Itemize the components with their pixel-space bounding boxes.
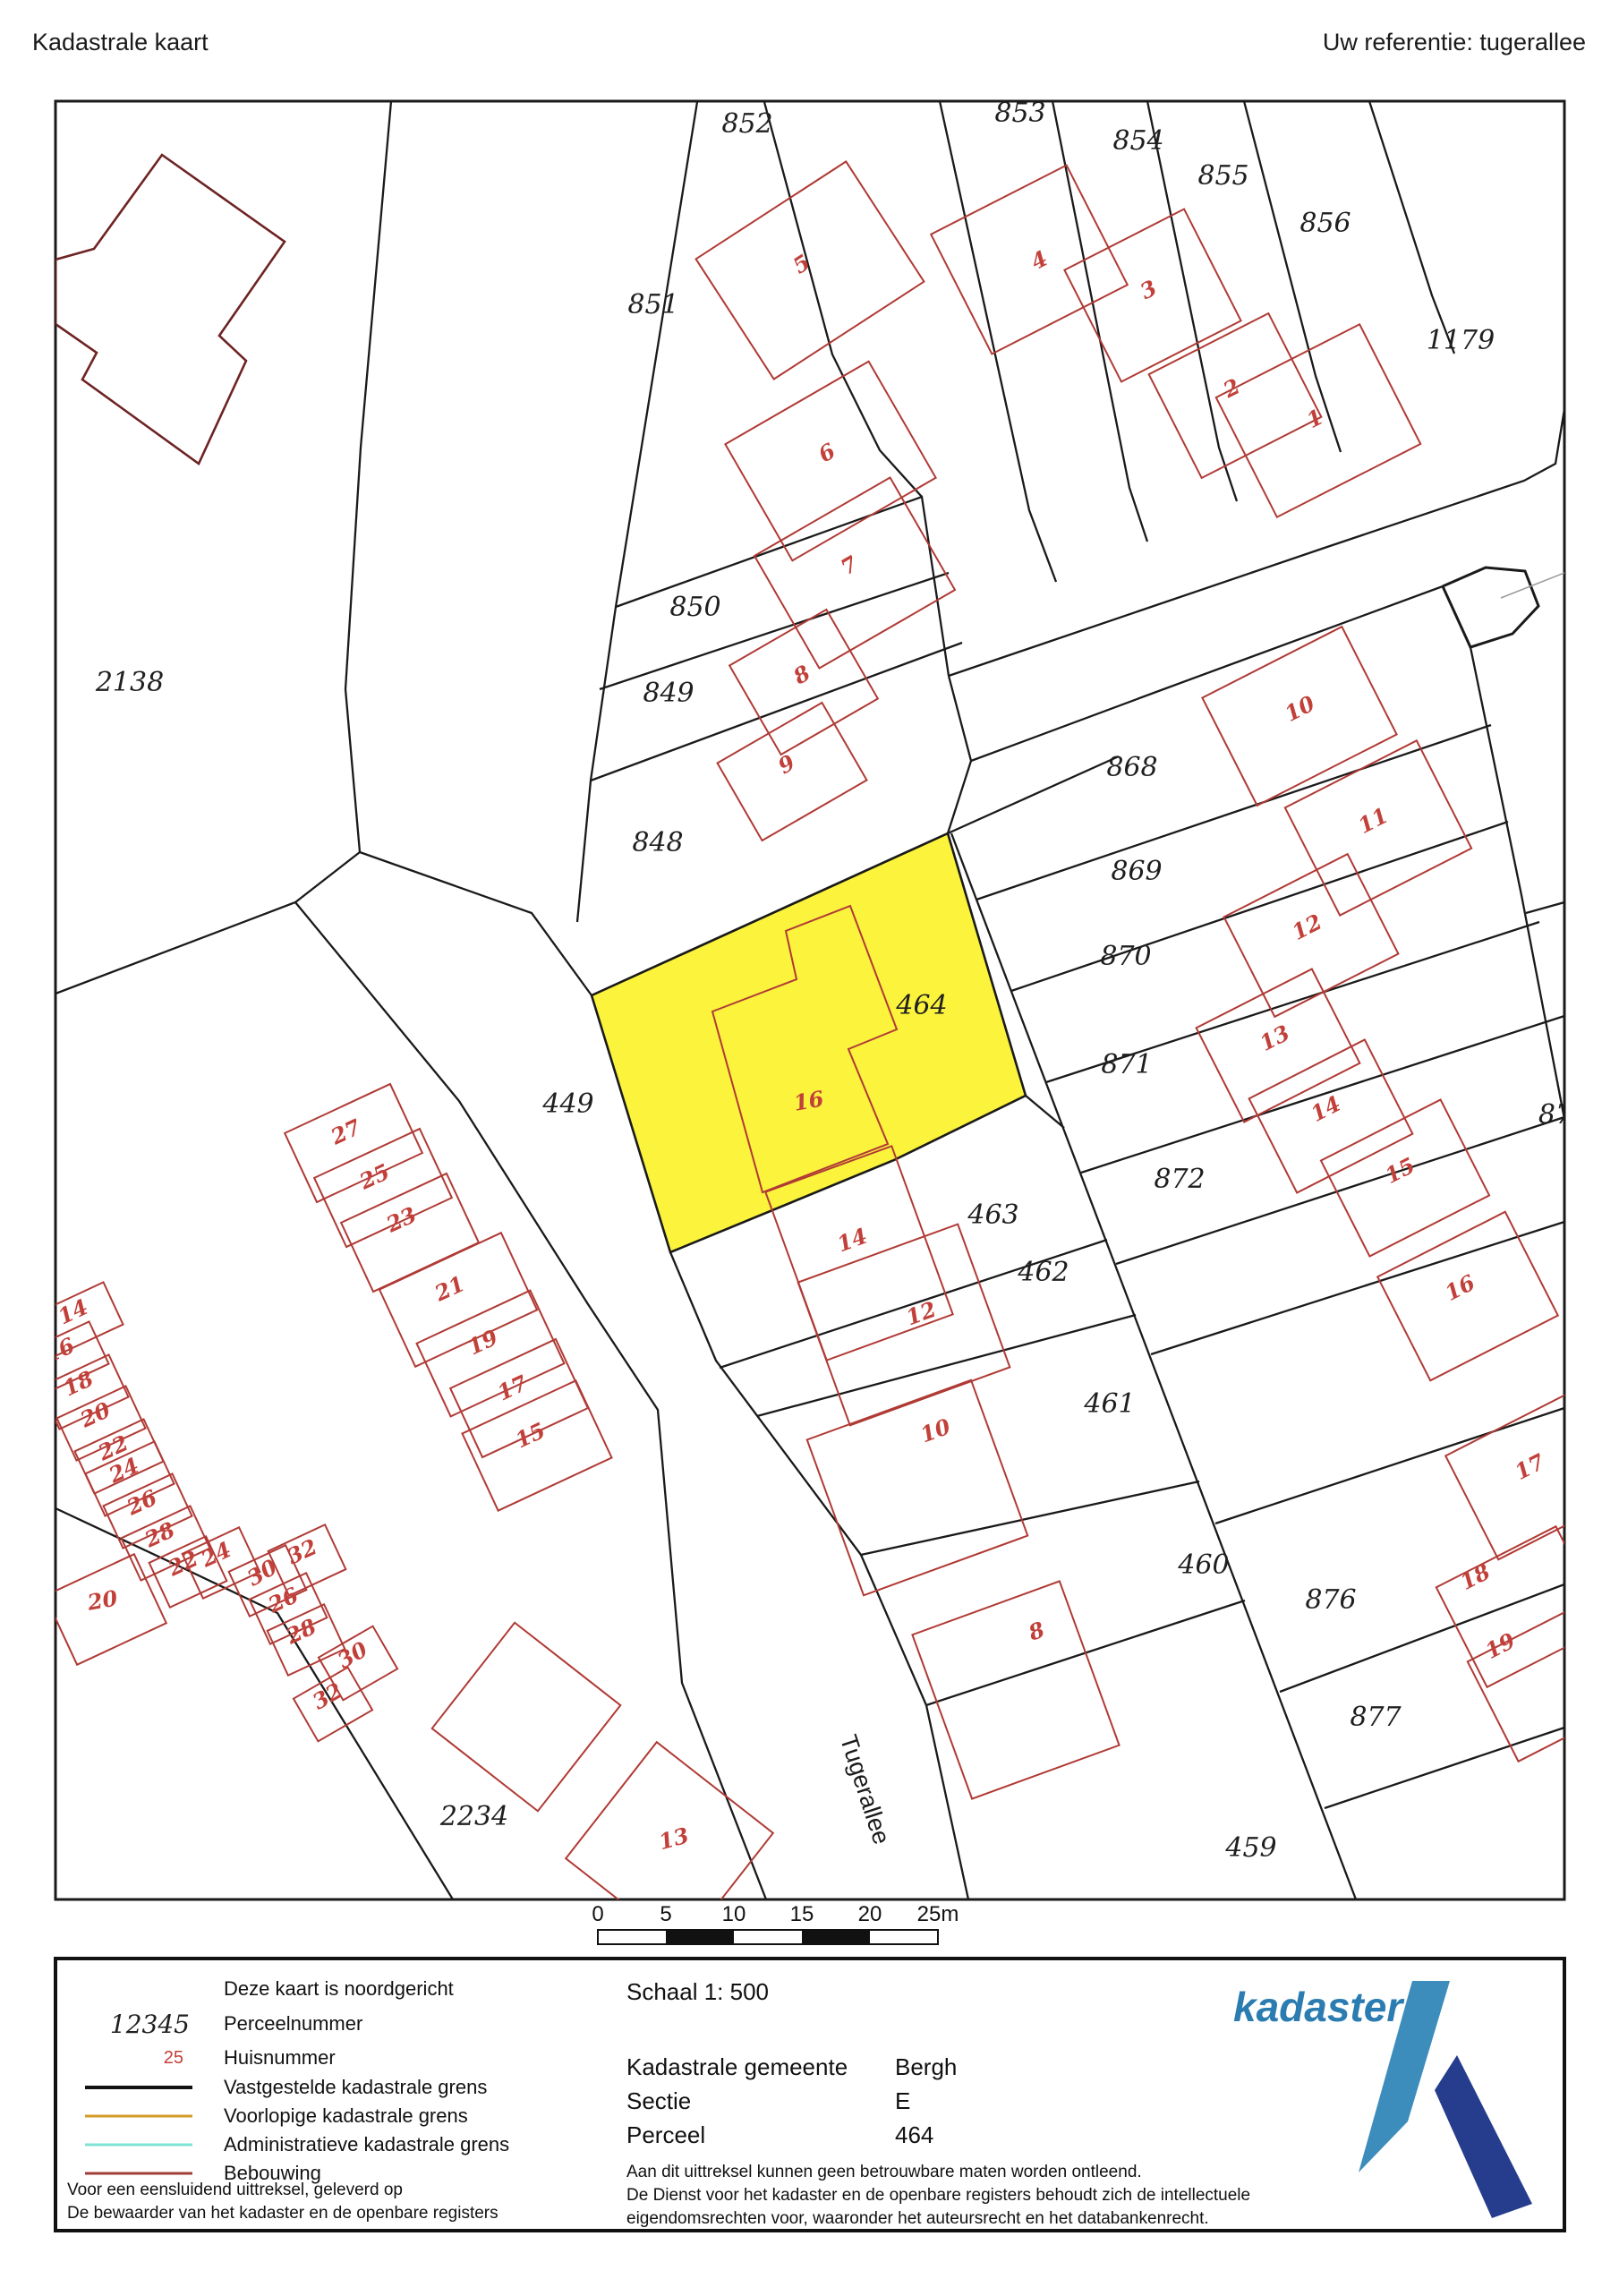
disclaimer-line: Aan dit uittreksel kunnen geen betrouwba… xyxy=(626,2163,1142,2181)
north-note: Deze kaart is noordgericht xyxy=(224,1977,454,2000)
scale-text: Schaal 1: 500 xyxy=(626,1978,769,2005)
kadaster-logo-text: kadaster xyxy=(1233,1984,1404,2030)
cadastral-map: 8528538548558561179851850849848213886886… xyxy=(20,98,1619,1950)
parcel-label: 459 xyxy=(1224,1832,1276,1864)
parcel-label: 849 xyxy=(643,678,694,709)
parcel-label: 848 xyxy=(632,827,683,858)
disclaimer-line: De Dienst voor het kadaster en de openba… xyxy=(626,2186,1250,2205)
legend-parcelnumber-label: Perceelnummer xyxy=(224,2012,362,2035)
parcel-label: 1179 xyxy=(1427,325,1495,356)
parcel-label: 851 xyxy=(627,289,678,320)
scale-tick-label: 20 xyxy=(858,1902,882,1926)
parcel-label: 460 xyxy=(1177,1549,1229,1581)
scale-bar: 0510152025m xyxy=(592,1902,959,1944)
parcel-label: 2138 xyxy=(95,667,164,698)
disclaimer-line: eigendomsrechten voor, waaronder het aut… xyxy=(626,2209,1209,2228)
parcel-label: 462 xyxy=(1017,1257,1069,1288)
parcel-label: 856 xyxy=(1299,208,1351,239)
house-number-label: 20 xyxy=(85,1584,120,1616)
parcel-label: 869 xyxy=(1111,856,1162,887)
legend-footer-line1: Voor een eensluidend uittreksel, gelever… xyxy=(67,2181,403,2199)
parcel-label: 868 xyxy=(1106,752,1157,783)
parcel-label: 87 xyxy=(1538,1099,1573,1131)
gemeente-value: Bergh xyxy=(895,2053,957,2080)
cadastral-extract-page: Kadastrale kaart Uw referentie: tugerall… xyxy=(0,0,1619,2292)
parcel-label: 449 xyxy=(541,1088,593,1120)
scale-tick-label: 15 xyxy=(790,1902,814,1926)
legend-item-label: Administratieve kadastrale grens xyxy=(224,2133,509,2155)
parcel-label: 855 xyxy=(1197,160,1248,192)
house-number-label: 16 xyxy=(792,1085,826,1115)
legend-housenumber-label: Huisnummer xyxy=(224,2046,336,2069)
reference-label: Uw referentie: tugerallee xyxy=(1323,29,1586,55)
footer-panel: Deze kaart is noordgericht 12345 Perceel… xyxy=(55,1959,1564,2231)
parcel-label: 876 xyxy=(1305,1584,1356,1616)
scale-tick-label: 5 xyxy=(660,1902,671,1926)
parcel-label: 872 xyxy=(1154,1164,1205,1195)
scale-tick-label: 25m xyxy=(917,1902,959,1926)
legend-sample-housenumber: 25 xyxy=(164,2048,183,2068)
parcel-label: 852 xyxy=(721,108,772,140)
page-title: Kadastrale kaart xyxy=(32,29,209,55)
scale-bar-segment xyxy=(802,1930,870,1944)
parcel-label: 877 xyxy=(1350,1702,1402,1733)
legend-item-label: Vastgestelde kadastrale grens xyxy=(224,2076,487,2098)
scale-bar-segment xyxy=(666,1930,734,1944)
legend-footer-line2: De bewaarder van het kadaster en de open… xyxy=(67,2204,498,2223)
scale-bar-track xyxy=(598,1930,938,1944)
scale-tick-labels: 0510152025m xyxy=(592,1902,959,1926)
legend-sample-parcelnumber: 12345 xyxy=(110,2010,190,2039)
parcel-label: 853 xyxy=(994,98,1045,129)
parcel-label: 2234 xyxy=(439,1801,508,1832)
gemeente-label: Kadastrale gemeente xyxy=(626,2053,848,2080)
parcel-label: 463 xyxy=(967,1199,1018,1231)
perceel-value: 464 xyxy=(895,2121,933,2148)
document-canvas: Kadastrale kaart Uw referentie: tugerall… xyxy=(0,0,1619,2292)
scale-tick-label: 10 xyxy=(722,1902,746,1926)
parcel-label: 871 xyxy=(1101,1049,1152,1080)
sectie-value: E xyxy=(895,2087,910,2114)
parcel-label: 850 xyxy=(669,592,720,623)
perceel-label: Perceel xyxy=(626,2121,705,2148)
parcel-label: 461 xyxy=(1083,1388,1135,1420)
parcel-label: 870 xyxy=(1100,941,1151,972)
sectie-label: Sectie xyxy=(626,2087,691,2114)
legend-item-label: Voorlopige kadastrale grens xyxy=(224,2104,468,2127)
scale-tick-label: 0 xyxy=(592,1902,603,1926)
parcel-label: 854 xyxy=(1112,125,1163,157)
parcel-label: 464 xyxy=(895,990,947,1021)
